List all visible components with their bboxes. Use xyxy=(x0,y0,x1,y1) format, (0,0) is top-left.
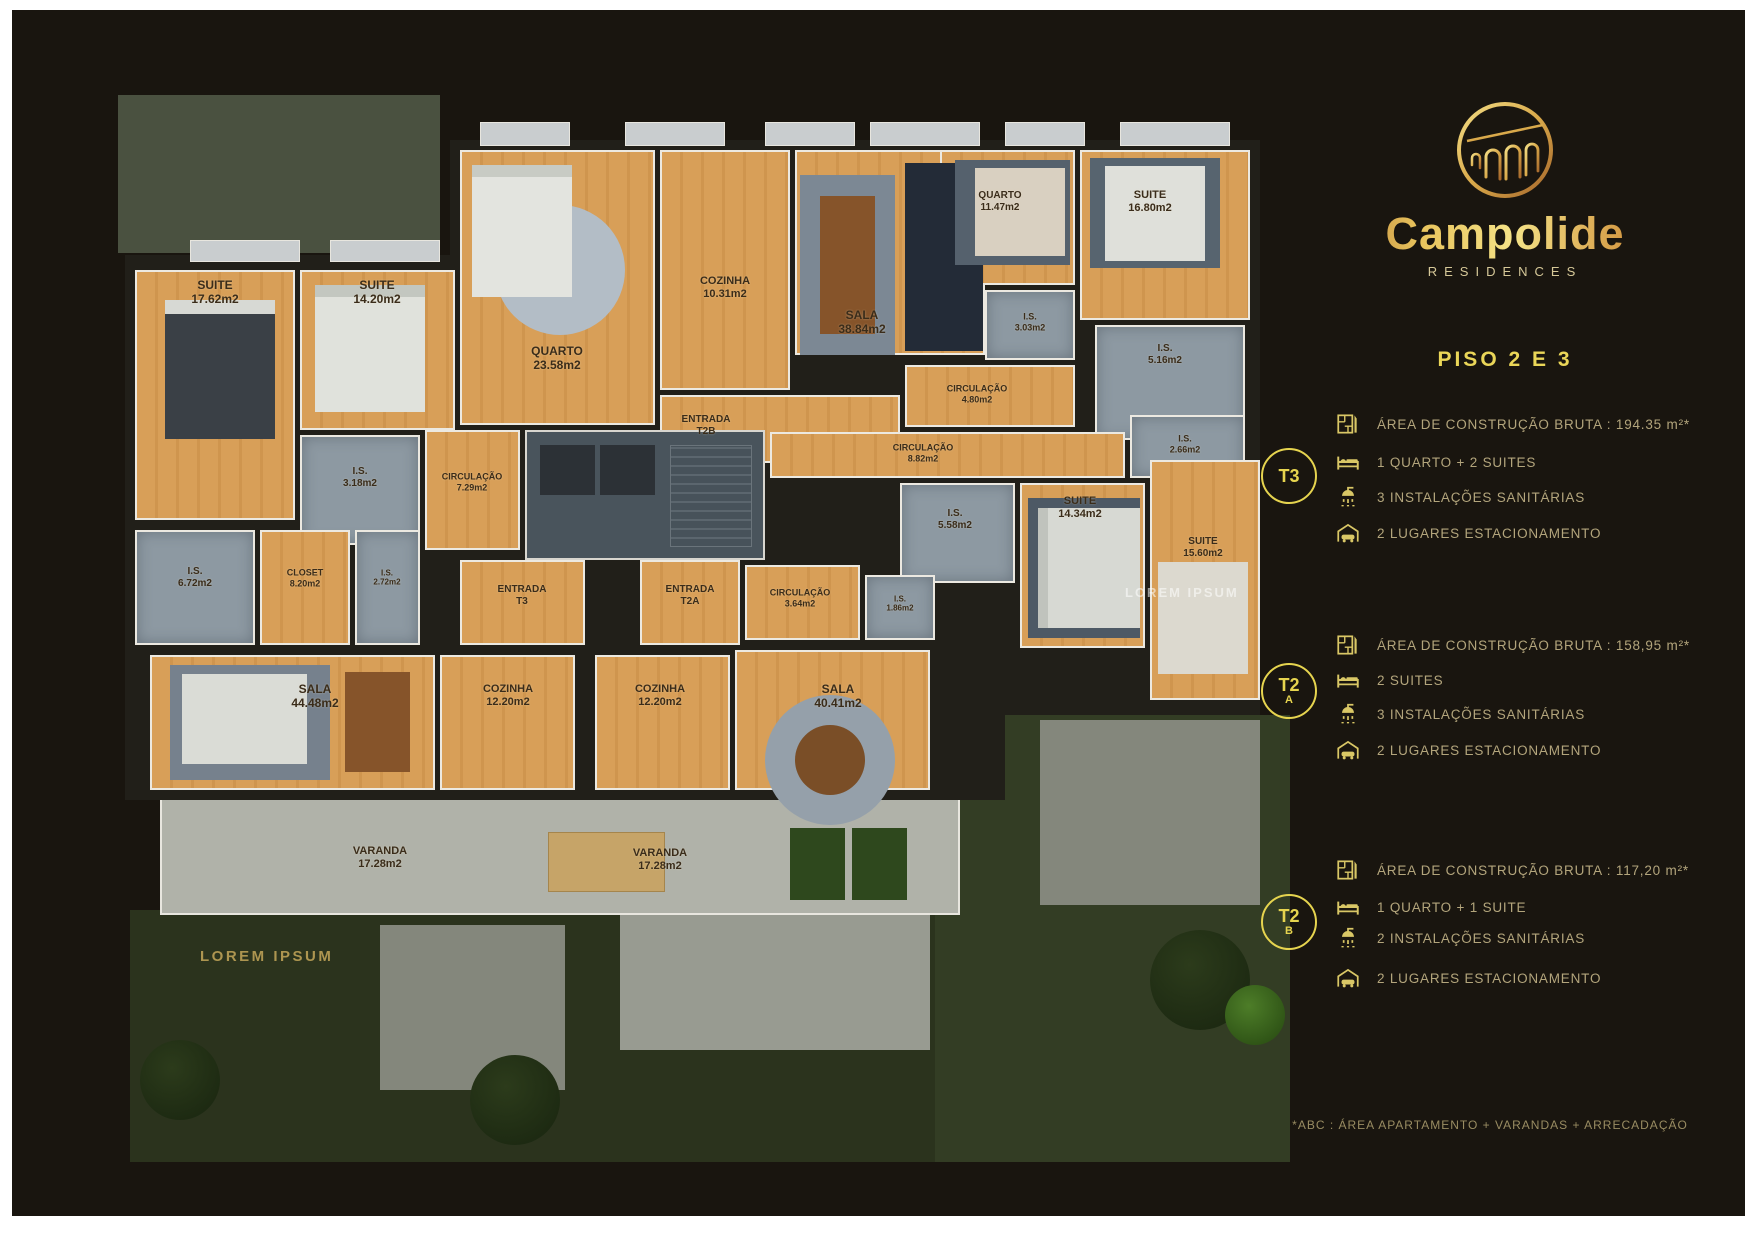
room-label: I.S.2.72m2 xyxy=(373,569,400,588)
balcony-ledge xyxy=(870,122,980,146)
footnote: *ABC : ÁREA APARTAMENTO + VARANDAS + ARR… xyxy=(1250,1118,1730,1132)
room xyxy=(660,150,790,390)
shower-icon xyxy=(1335,484,1361,510)
room-label: CIRCULAÇÃO3.64m2 xyxy=(770,587,831,608)
bed-decor xyxy=(1158,562,1248,674)
room xyxy=(595,655,730,790)
room-label: SALA40.41m2 xyxy=(814,682,861,710)
balcony-ledge xyxy=(330,240,440,262)
car-icon xyxy=(1335,737,1361,763)
site-ground xyxy=(118,95,440,253)
room-label: SUITE14.34m2 xyxy=(1058,495,1101,521)
room-label: SALA38.84m2 xyxy=(838,308,885,336)
spec-row: 2 SUITES xyxy=(1335,665,1745,695)
room xyxy=(300,435,420,545)
planter-decor xyxy=(852,828,907,900)
unit-badge-t2a: T2 A xyxy=(1261,663,1317,719)
room-label: ENTRADAT3 xyxy=(498,584,547,608)
floorplan-icon xyxy=(1335,857,1361,883)
room-label: COZINHA10.31m2 xyxy=(700,275,750,301)
room-label: I.S.3.03m2 xyxy=(1015,311,1046,332)
room-label: SUITE17.62m2 xyxy=(191,278,238,306)
balcony-ledge xyxy=(765,122,855,146)
room-label: I.S.1.86m2 xyxy=(886,595,913,614)
room-label: I.S.2.66m2 xyxy=(1170,433,1201,454)
round-table-decor xyxy=(795,725,865,795)
elevator-decor xyxy=(540,445,595,495)
garden-caption: LOREM IPSUM xyxy=(200,948,333,965)
bed-decor xyxy=(472,165,572,297)
bed-decor xyxy=(1038,508,1140,628)
brand-name: Campolide xyxy=(1290,208,1720,260)
room-label: CIRCULAÇÃO8.82m2 xyxy=(893,442,954,463)
patio-pavilion xyxy=(620,915,930,1050)
balcony-ledge xyxy=(625,122,725,146)
plan-watermark: LOREM IPSUM xyxy=(1125,585,1239,600)
room-label: I.S.5.16m2 xyxy=(1148,343,1182,367)
shower-icon xyxy=(1335,701,1361,727)
bed-decor xyxy=(165,300,275,439)
room-label: ENTRADAT2A xyxy=(666,584,715,608)
bed-icon xyxy=(1335,894,1361,920)
bed-icon xyxy=(1335,449,1361,475)
car-icon xyxy=(1335,965,1361,991)
room-label: QUARTO23.58m2 xyxy=(531,344,583,372)
bush xyxy=(1225,985,1285,1045)
balcony-ledge xyxy=(1005,122,1085,146)
room-label: VARANDA17.28m2 xyxy=(353,845,407,871)
spec-row: 1 QUARTO + 2 SUITES xyxy=(1335,447,1745,477)
room-label: I.S.5.58m2 xyxy=(938,508,972,532)
tree xyxy=(470,1055,560,1145)
spec-row: 1 QUARTO + 1 SUITE xyxy=(1335,892,1745,922)
spec-row: 3 INSTALAÇÕES SANITÁRIAS xyxy=(1335,699,1745,729)
room-label: COZINHA12.20m2 xyxy=(483,683,533,709)
spec-row: ÁREA DE CONSTRUÇÃO BRUTA : 158,95 m²* xyxy=(1335,630,1745,660)
room-label: I.S.6.72m2 xyxy=(178,566,212,590)
room-label: CLOSET8.20m2 xyxy=(287,567,324,588)
room-label: ENTRADAT2B xyxy=(682,414,731,438)
car-icon xyxy=(1335,520,1361,546)
planter-decor xyxy=(790,828,845,900)
room-label: SALA44.48m2 xyxy=(291,682,338,710)
shower-icon xyxy=(1335,925,1361,951)
room-label: COZINHA12.20m2 xyxy=(635,683,685,709)
balcony-ledge xyxy=(1120,122,1230,146)
spec-row: 2 LUGARES ESTACIONAMENTO xyxy=(1335,735,1745,765)
room-label: SUITE15.60m2 xyxy=(1183,536,1222,560)
unit-badge-t3: T3 xyxy=(1261,448,1317,504)
spec-row: 2 LUGARES ESTACIONAMENTO xyxy=(1335,963,1745,993)
room-label: SUITE14.20m2 xyxy=(353,278,400,306)
brand-logo xyxy=(1450,95,1560,205)
brand-subtitle: RESIDENCES xyxy=(1290,264,1720,279)
bed-icon xyxy=(1335,667,1361,693)
patio-right xyxy=(1040,720,1260,905)
page-title: PISO 2 E 3 xyxy=(1290,348,1720,372)
tree xyxy=(140,1040,220,1120)
elevator-decor xyxy=(600,445,655,495)
balcony-ledge xyxy=(190,240,300,262)
balcony-ledge xyxy=(480,122,570,146)
floorplan-icon xyxy=(1335,411,1361,437)
spec-row: 2 LUGARES ESTACIONAMENTO xyxy=(1335,518,1745,548)
room-label: CIRCULAÇÃO7.29m2 xyxy=(442,471,503,492)
room-label: CIRCULAÇÃO4.80m2 xyxy=(947,383,1008,404)
sofa-decor xyxy=(182,674,307,764)
stairs-decor xyxy=(670,445,752,547)
spec-row: ÁREA DE CONSTRUÇÃO BRUTA : 194.35 m²* xyxy=(1335,409,1745,439)
unit-badge-t2b: T2 B xyxy=(1261,894,1317,950)
room xyxy=(900,483,1015,583)
aqueduct-logo-icon xyxy=(1450,95,1560,205)
floorplan-icon xyxy=(1335,632,1361,658)
spec-row: ÁREA DE CONSTRUÇÃO BRUTA : 117,20 m²* xyxy=(1335,855,1745,885)
room-label: QUARTO11.47m2 xyxy=(978,190,1021,214)
dining-table-decor xyxy=(345,672,410,772)
room-label: I.S.3.18m2 xyxy=(343,466,377,490)
brochure-page: SUITE17.62m2SUITE14.20m2I.S.3.18m2CIRCUL… xyxy=(0,0,1755,1240)
room xyxy=(440,655,575,790)
spec-row: 2 INSTALAÇÕES SANITÁRIAS xyxy=(1335,923,1745,953)
spec-row: 3 INSTALAÇÕES SANITÁRIAS xyxy=(1335,482,1745,512)
room-label: SUITE16.80m2 xyxy=(1128,189,1171,215)
room-label: VARANDA17.28m2 xyxy=(633,847,687,873)
room xyxy=(355,530,420,645)
